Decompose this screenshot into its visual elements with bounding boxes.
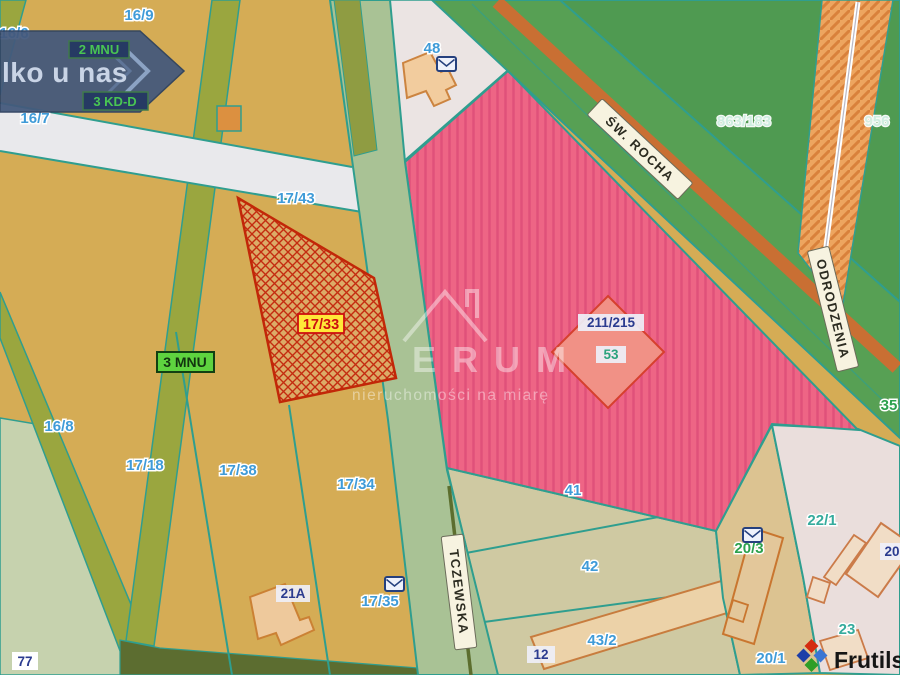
parcel-label-17-34: 17/34: [337, 476, 375, 493]
mail-marker-icon[interactable]: [385, 577, 404, 591]
zone-label-3kdd: 3 KD-D: [83, 92, 148, 110]
logo-text: Frutils: [834, 647, 900, 673]
banner-text: lko u nas: [2, 57, 128, 88]
zone-code: 3 MNU: [163, 354, 207, 370]
parcel-label-17-33: 17/33: [303, 317, 339, 333]
label-box-21a: 21A: [276, 585, 310, 602]
parcel-label-17-43: 17/43: [277, 190, 315, 207]
watermark-brand: ERUM: [412, 339, 582, 380]
parcel-label-863-183: 863/183: [717, 113, 771, 130]
label-box-77: 77: [12, 652, 38, 670]
parcel-label-35: 35: [881, 397, 898, 414]
parcel-label-42: 42: [582, 558, 599, 575]
parcel-label-956: 956: [864, 113, 889, 130]
parcel-label-16-8: 16/8: [44, 418, 73, 435]
parcel-label-20-1: 20/1: [756, 650, 785, 667]
parcel-label-17-35: 17/35: [361, 593, 399, 610]
parcel-label-22-1: 22/1: [807, 512, 836, 529]
zone-code: 2 MNU: [79, 42, 119, 57]
mail-marker-icon[interactable]: [743, 528, 762, 542]
zone-code: 3 KD-D: [93, 94, 136, 109]
mail-marker-icon[interactable]: [437, 57, 456, 71]
parcel-label-17-38: 17/38: [219, 462, 257, 479]
label-box-12: 12: [527, 646, 555, 663]
label-box-17-33[interactable]: 17/33: [298, 314, 344, 333]
map-canvas[interactable]: TCZEWSKA ŚW. ROCHA ODRODZENIA ERUM nieru…: [0, 0, 900, 675]
parcel-label-48: 48: [424, 40, 441, 57]
map-viewport: TCZEWSKA ŚW. ROCHA ODRODZENIA ERUM nieru…: [0, 0, 900, 675]
parcel-label-211-215: 211/215: [587, 315, 636, 330]
parcel-label-21a: 21A: [281, 586, 306, 601]
parcel-label-16-9: 16/9: [124, 7, 153, 24]
parcel-label-41: 41: [565, 482, 582, 499]
parcel-label-43-2: 43/2: [587, 632, 616, 649]
parcel-label-17-18: 17/18: [126, 457, 164, 474]
parcel-label-77: 77: [17, 654, 32, 669]
parcel-label-23: 23: [839, 621, 856, 638]
zone-label-3mnu: 3 MNU: [157, 352, 214, 372]
watermark-tagline: nieruchomości na miarę: [352, 387, 550, 404]
parcel-label-20: 20: [884, 544, 899, 559]
parcel-label-12: 12: [533, 647, 548, 662]
parcel-label-53: 53: [603, 347, 619, 362]
small-building: [217, 106, 241, 131]
zone-label-2mnu: 2 MNU: [69, 41, 129, 58]
label-box-20: 20: [880, 543, 900, 560]
